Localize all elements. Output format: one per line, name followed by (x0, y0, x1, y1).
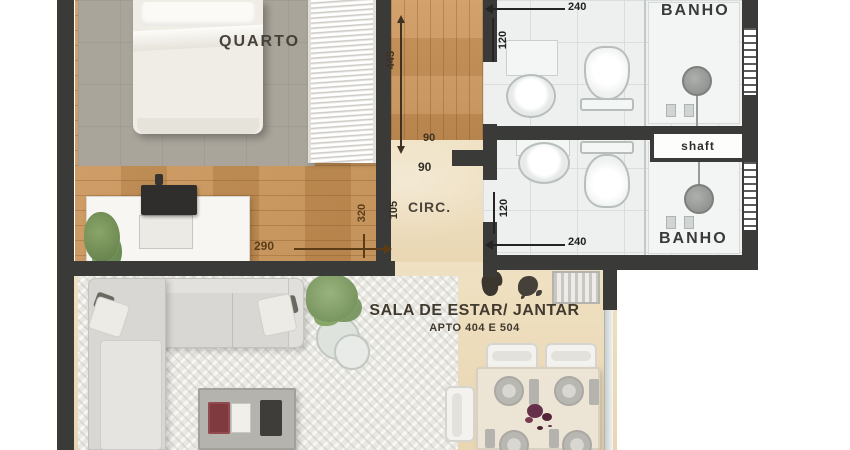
coffee-table-book-red (208, 402, 230, 434)
shower-control-bottom (666, 216, 676, 229)
banho-bottom-label: BANHO (659, 230, 728, 248)
dim-105: 105 (387, 193, 401, 227)
table-flowers-icon (527, 404, 543, 418)
dim-arrow (397, 146, 405, 154)
dim-arrow (384, 244, 392, 254)
wall-right-top (742, 0, 758, 28)
wall-living-right (603, 262, 617, 310)
shower-control-top (666, 104, 676, 117)
circ-label: CIRC. (408, 199, 451, 215)
chair-roll (492, 351, 532, 361)
wall-bedroom-bottom (57, 261, 395, 276)
dim-arrow (397, 15, 405, 23)
dim-text: 120 (497, 31, 509, 49)
dim-arrow (485, 4, 493, 14)
dim-240-top: 240 (568, 1, 586, 13)
shower-partition-top (644, 0, 646, 126)
dim-443: 443 (384, 43, 398, 77)
sala-label-group: SALA DE ESTAR/ JANTAR APTO 404 E 504 (352, 302, 597, 334)
tv-icon (141, 185, 197, 215)
dim-line-443 (400, 22, 402, 146)
toilet-tank-bottom (580, 141, 634, 154)
napkin-icon (589, 379, 599, 405)
chair-roll (452, 393, 462, 437)
shower-partition-bottom (644, 140, 646, 255)
plate-icon (494, 376, 524, 406)
shower-control2-bottom (684, 216, 694, 229)
sala-title: SALA DE ESTAR/ JANTAR (352, 302, 597, 320)
banho-top-label: BANHO (661, 2, 730, 20)
dim-90-top: 90 (423, 132, 435, 144)
coffee-table-tray (260, 400, 282, 436)
dim-text: 320 (356, 204, 368, 222)
napkin-icon (529, 379, 539, 405)
dim-arrow (485, 240, 493, 250)
sink-icon-top (506, 74, 556, 118)
floor-plan: shaft QUARTO BANHO BANHO CIRC. SALA DE E… (0, 0, 850, 450)
wall-right-bottom (742, 230, 758, 270)
chair-roll (551, 351, 591, 361)
sink-icon-bottom (518, 142, 570, 184)
dim-120-top: 120 (496, 23, 510, 57)
sala-subtitle: APTO 404 E 504 (352, 322, 597, 334)
plate-icon (554, 376, 584, 406)
dining-chair-left (445, 386, 475, 442)
window-top-icon (742, 28, 758, 95)
dim-90-bottom: 90 (418, 160, 431, 174)
shaft-box: shaft (650, 130, 746, 162)
dim-text: 120 (498, 199, 510, 217)
shower-tray-top (648, 2, 740, 124)
dim-text: 443 (385, 51, 397, 69)
quarto-label: QUARTO (219, 33, 300, 51)
shower-head-icon-bottom (684, 184, 714, 214)
shower-head-icon-top (682, 66, 712, 96)
napkin-icon (485, 429, 495, 448)
dim-240-bottom: 240 (568, 236, 586, 248)
toilet-icon-top (584, 46, 630, 100)
sofa-seat-divider-2 (232, 293, 233, 347)
console-radiator (552, 271, 600, 304)
dim-text: 105 (388, 201, 400, 219)
toilet-icon-bottom (584, 154, 630, 208)
wardrobe (308, 0, 376, 163)
dim-320: 320 (355, 196, 369, 230)
bed-pillow (141, 2, 255, 26)
shower-control2-top (684, 104, 694, 117)
toilet-tank-top (580, 98, 634, 111)
side-table-small (334, 334, 370, 370)
shaft-label: shaft (681, 139, 715, 153)
wall-bathrooms-bottom (483, 255, 758, 270)
bedroom-plant-icon (84, 212, 120, 262)
vase-icon (155, 174, 163, 185)
window-bottom-icon (742, 162, 758, 230)
dim-line-240-top (491, 8, 565, 10)
dim-line-290 (294, 248, 386, 250)
shower-pipe-top (696, 92, 698, 128)
balcony-glass-door-icon (604, 310, 613, 450)
bed-foot (137, 118, 259, 134)
dim-line-120-bottom (493, 192, 495, 234)
dim-line-240-bottom (491, 244, 565, 246)
vanity-top (506, 40, 558, 76)
dim-120-bottom: 120 (497, 191, 511, 225)
sofa-chaise-cushion (100, 340, 162, 450)
wall-left (57, 0, 74, 450)
tv-stand-drawer (139, 215, 193, 249)
shower-pipe-bottom (698, 160, 700, 186)
dim-line-320 (363, 234, 365, 258)
dim-290: 290 (254, 239, 274, 253)
wall-hall-spine (376, 0, 391, 276)
napkin-icon (549, 429, 559, 448)
bed (133, 0, 263, 134)
dim-line-120-top (492, 18, 494, 62)
coffee-table-magazine (231, 403, 251, 433)
